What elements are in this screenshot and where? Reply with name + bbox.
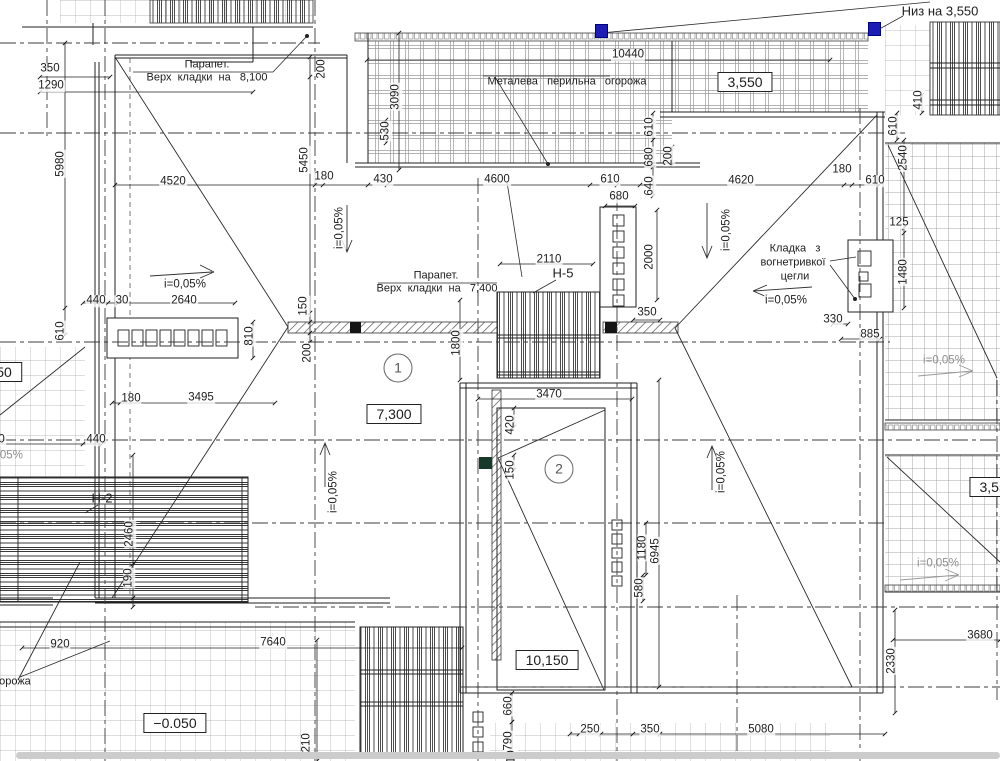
- dim-label: 2460: [124, 520, 136, 548]
- level-note-partial: Ств.С 450: [905, 0, 966, 2]
- dim-label: 150: [298, 295, 310, 316]
- dim-label: 7640: [259, 637, 287, 649]
- dim-label: 190: [123, 567, 135, 588]
- railing-note-partial: огорожа: [0, 677, 31, 688]
- dim-label: 30: [115, 295, 130, 307]
- roof-plan-drawing: 3501290598020054504520180430460061046201…: [0, 0, 1000, 761]
- dim-label: 150: [505, 459, 517, 480]
- masonry-note-line1: Кладка з: [770, 244, 821, 255]
- elevation-box: 3,550: [717, 72, 772, 92]
- dim-label: 1180: [637, 535, 649, 562]
- dim-label: 610: [864, 175, 885, 187]
- dim-label: 440: [85, 434, 106, 446]
- dim-label: 2000: [644, 243, 656, 271]
- elevation-box: 7,300: [366, 404, 421, 424]
- parapet-note-title: Парапет.: [185, 60, 230, 71]
- dim-label: 200: [663, 145, 675, 166]
- dim-label: 5080: [747, 724, 775, 736]
- dim-label: 920: [49, 639, 70, 651]
- dim-label: 1800: [451, 329, 463, 357]
- elevation-box: −0.050: [143, 713, 206, 733]
- slope-label: i=0,05%: [334, 206, 346, 250]
- dim-label: 180: [831, 164, 852, 176]
- dim-label: 5450: [299, 146, 311, 174]
- dim-label: 250: [579, 724, 600, 736]
- masonry-note-line2: вогнетривкої: [761, 258, 826, 269]
- dim-label: 2540: [898, 144, 910, 172]
- dim-label: 680: [608, 191, 629, 203]
- dim-label: 200: [316, 58, 328, 79]
- dim-label: 180: [120, 393, 141, 405]
- dim-label: 610: [888, 115, 900, 136]
- dim-label: 4520: [159, 176, 187, 188]
- dim-label: 680: [644, 146, 656, 167]
- dim-label: 610: [644, 116, 656, 137]
- dim-label: 10440: [611, 49, 645, 61]
- dim-label: 350: [39, 63, 60, 75]
- region-marker-1: 1: [384, 354, 413, 383]
- dim-label: 410: [913, 89, 925, 110]
- dim-label: 885: [859, 329, 880, 341]
- dim-label: 4600: [483, 174, 511, 186]
- dim-label: 610: [55, 320, 67, 341]
- dim-label: 6945: [650, 537, 662, 565]
- dim-label: 180: [313, 171, 334, 183]
- dim-label: 640: [644, 175, 656, 196]
- dim-label: 5980: [55, 150, 67, 178]
- parapet-note-body: Верх кладки на 8,100: [147, 73, 268, 84]
- slope-label: i=0,05%: [328, 470, 340, 514]
- dim-label: 610: [599, 174, 620, 186]
- slope-label: i=0,05%: [0, 450, 23, 462]
- slope-label: i=0,05%: [716, 450, 728, 494]
- dim-label: 2640: [170, 295, 198, 307]
- parapet-note-body: Верх кладки на 7,400: [377, 284, 498, 295]
- slope-label: i=0,05%: [917, 558, 959, 570]
- dim-label: 125: [888, 217, 909, 229]
- region-marker-2: 2: [545, 455, 574, 484]
- dim-label: 2110: [536, 254, 563, 266]
- dim-label: 580: [634, 577, 646, 598]
- dim-label: 350: [636, 307, 657, 319]
- node-label-h2: Н-2: [92, 492, 113, 505]
- dim-label: 3495: [187, 392, 215, 404]
- dim-label: 420: [505, 414, 517, 435]
- dim-label: 430: [372, 174, 393, 186]
- dim-label: 2330: [886, 647, 898, 675]
- parapet-note-title: Парапет.: [414, 271, 459, 282]
- elevation-box: 10,150: [516, 650, 579, 670]
- elevation-box: 50: [0, 362, 22, 382]
- horizontal-scrollbar-thumb[interactable]: [16, 752, 1000, 759]
- dim-label: 4620: [727, 175, 755, 187]
- node-label-h5: Н-5: [553, 267, 574, 280]
- slope-label: i=0,05%: [923, 355, 965, 367]
- dim-label: 200: [302, 342, 314, 363]
- dim-label: 6000: [0, 434, 6, 446]
- dim-label: 1290: [37, 80, 65, 92]
- slope-label: i=0,05%: [163, 279, 207, 291]
- dim-label: 530: [380, 120, 392, 141]
- dim-label: 3090: [390, 83, 402, 111]
- dim-label: 3680: [966, 630, 994, 642]
- dim-label: 350: [639, 724, 660, 736]
- level-note: Низ на 3,550: [902, 5, 979, 18]
- railing-note: Металева перильна огорожа: [487, 77, 646, 88]
- masonry-note-line3: цегли: [781, 272, 810, 283]
- dim-label: 330: [822, 314, 843, 326]
- dim-label: 1480: [898, 258, 910, 286]
- slope-label: i=0,05%: [764, 295, 808, 307]
- dim-label: 3470: [535, 389, 563, 401]
- dim-label: 790: [503, 730, 515, 751]
- elevation-box: 3,550: [969, 477, 1000, 497]
- dim-label: 810: [244, 325, 256, 346]
- annotation-labels-layer: 3501290598020054504520180430460061046201…: [0, 0, 1000, 761]
- slope-label: i=0,05%: [721, 208, 733, 252]
- dim-label: 660: [503, 695, 515, 716]
- dim-label: 440: [85, 295, 106, 307]
